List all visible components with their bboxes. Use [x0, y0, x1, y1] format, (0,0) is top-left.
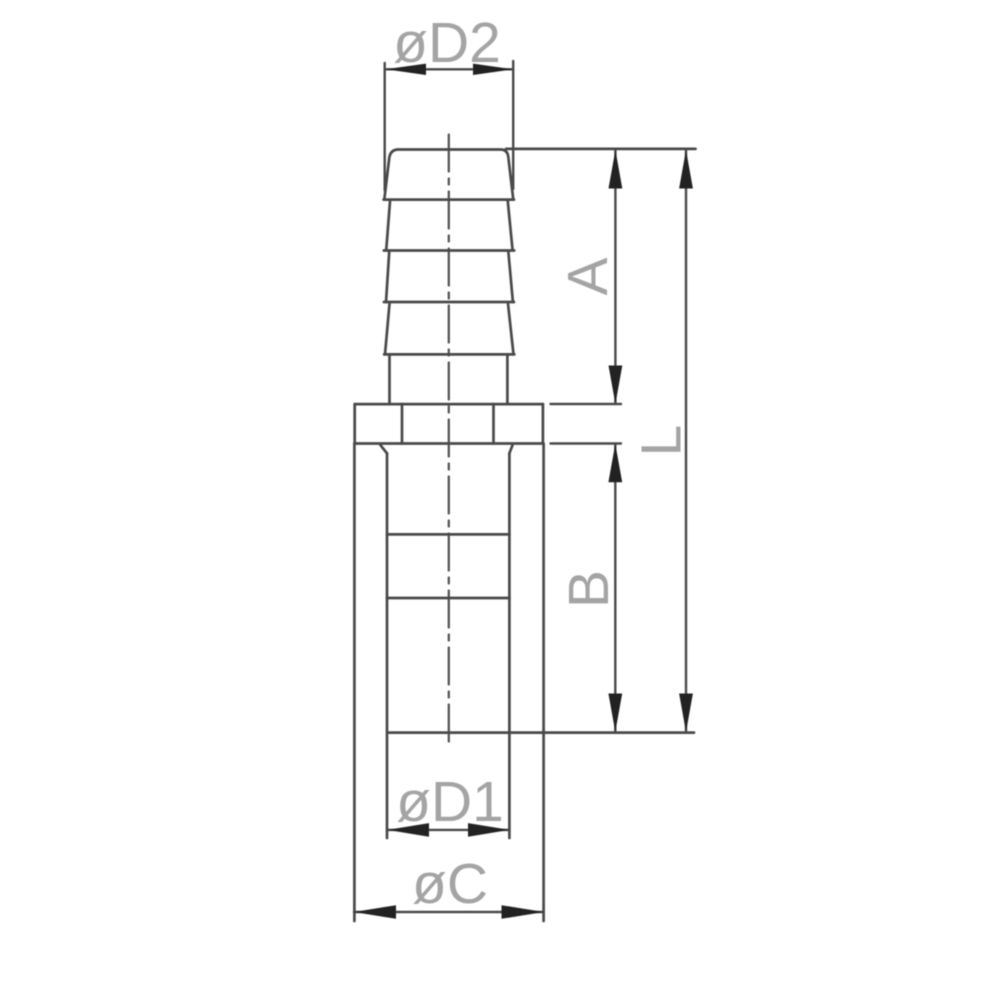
- svg-text:L: L: [630, 425, 694, 457]
- svg-text:A: A: [556, 257, 620, 295]
- svg-text:øC: øC: [412, 852, 488, 916]
- svg-text:øD1: øD1: [396, 770, 504, 834]
- svg-text:B: B: [557, 570, 621, 608]
